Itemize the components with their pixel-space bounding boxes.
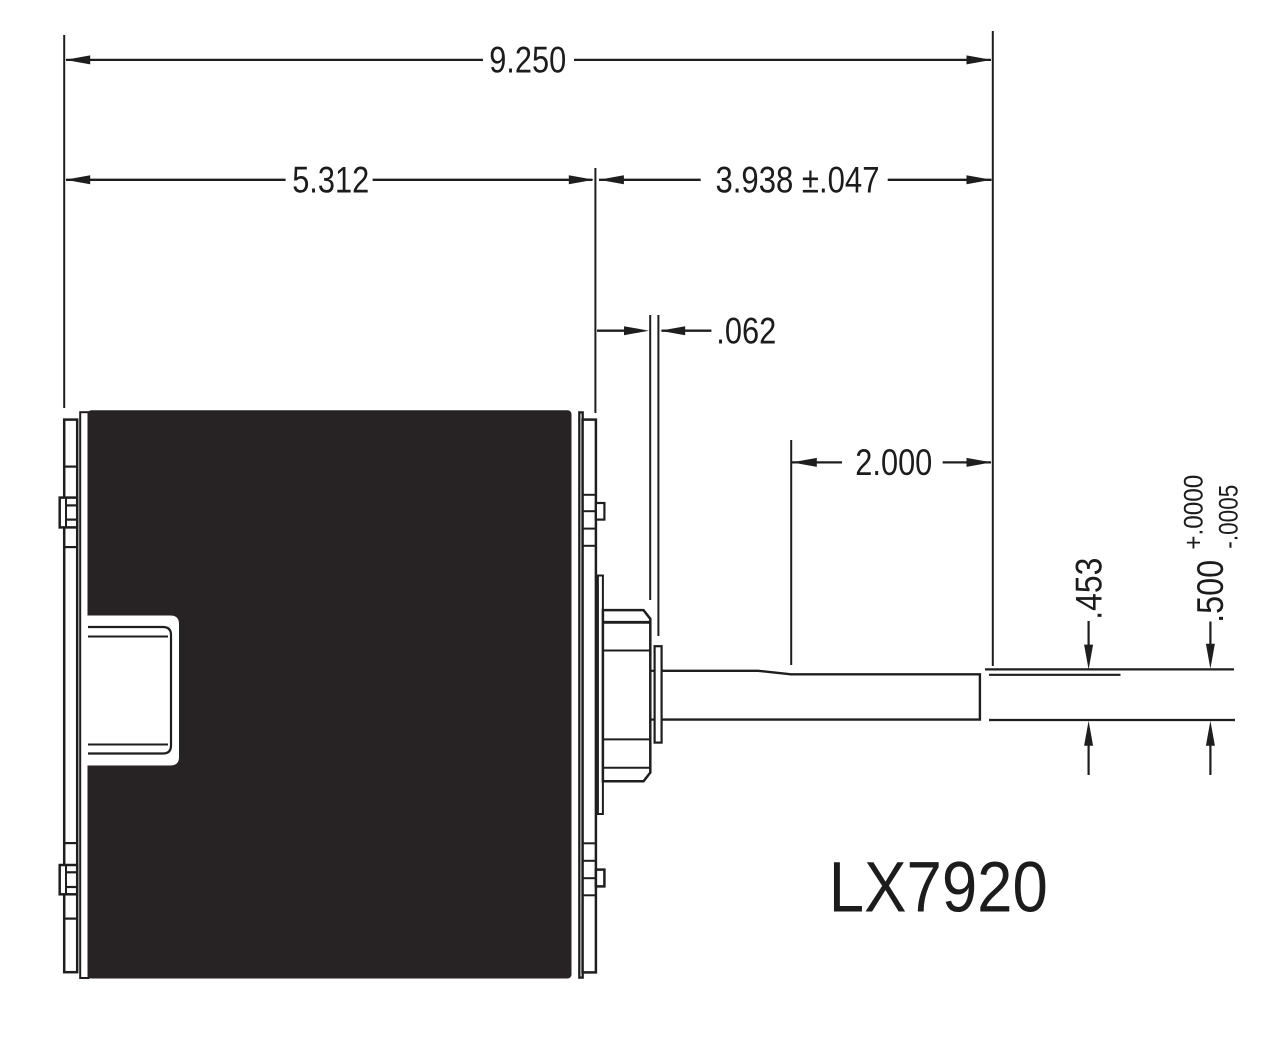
svg-text:LX7920: LX7920	[829, 849, 1048, 928]
svg-text:2.000: 2.000	[855, 441, 932, 483]
svg-text:+.0000: +.0000	[1179, 475, 1209, 550]
svg-text:9.250: 9.250	[489, 39, 566, 81]
svg-text:.453: .453	[1068, 558, 1109, 620]
svg-text:-.0005: -.0005	[1214, 485, 1244, 549]
svg-text:3.938 ±.047: 3.938 ±.047	[716, 159, 880, 201]
svg-text:5.312: 5.312	[292, 159, 369, 201]
svg-text:.500: .500	[1190, 560, 1231, 623]
svg-text:.062: .062	[716, 309, 776, 351]
